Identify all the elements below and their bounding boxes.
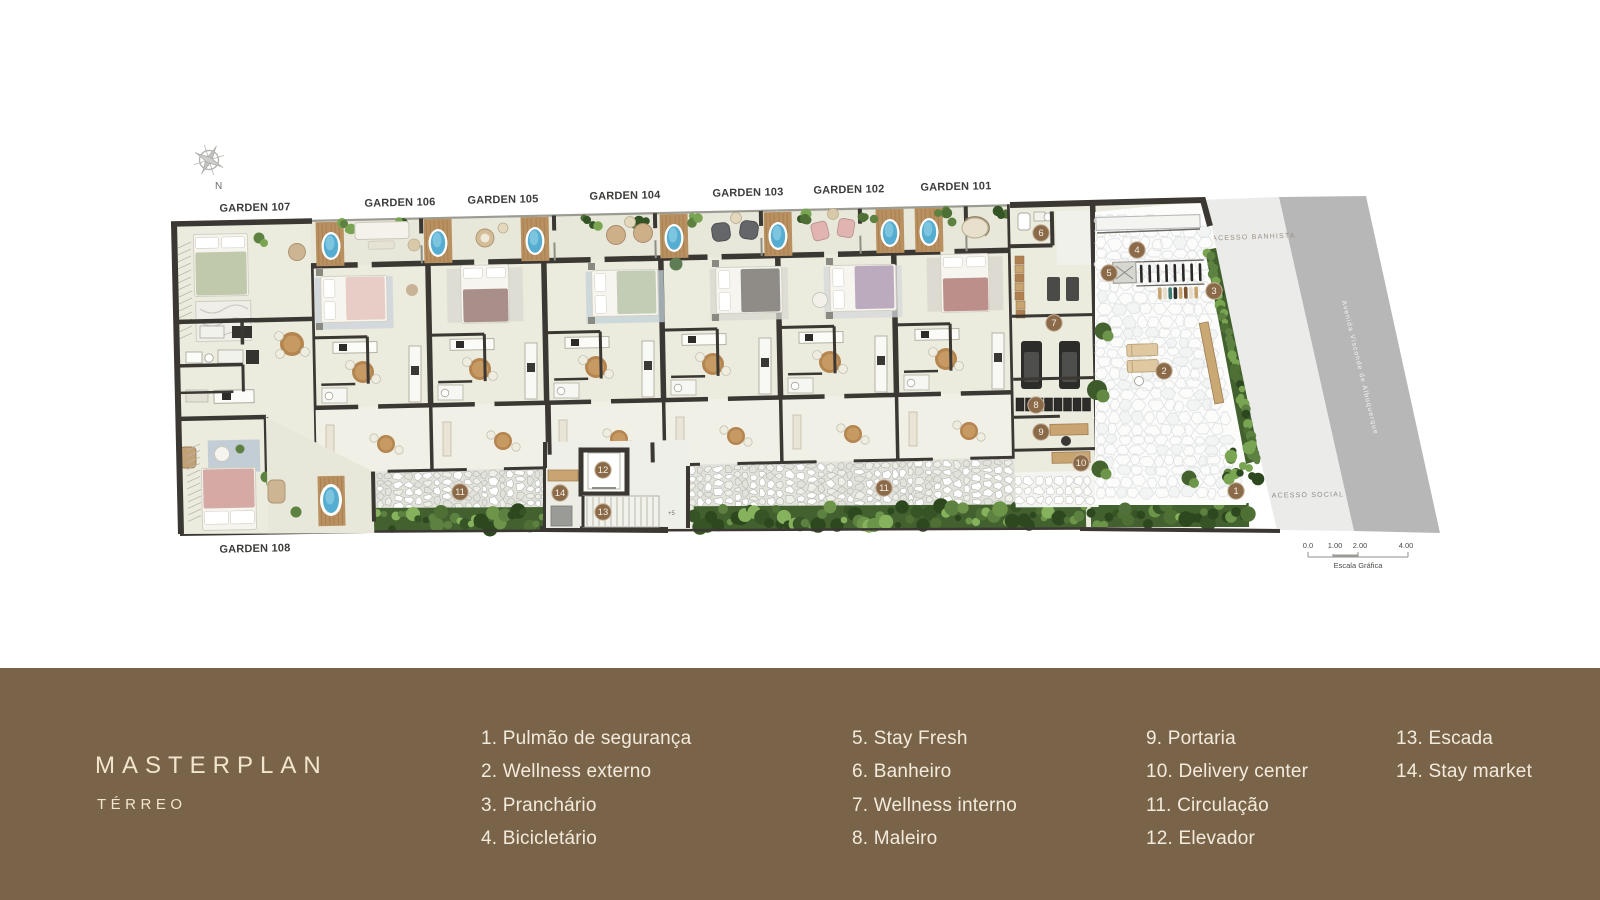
svg-text:6: 6 — [1038, 228, 1043, 239]
svg-text:7: 7 — [1051, 318, 1056, 329]
svg-text:1.00: 1.00 — [1328, 541, 1343, 550]
svg-text:11: 11 — [879, 483, 889, 494]
svg-text:GARDEN 106: GARDEN 106 — [364, 196, 435, 210]
svg-text:14: 14 — [555, 488, 566, 499]
svg-text:2: 2 — [1161, 366, 1166, 377]
svg-text:3: 3 — [1211, 286, 1216, 297]
svg-text:GARDEN 103: GARDEN 103 — [712, 186, 783, 200]
svg-text:5: 5 — [1106, 268, 1111, 279]
svg-text:GARDEN 104: GARDEN 104 — [589, 189, 661, 203]
svg-text:GARDEN 105: GARDEN 105 — [467, 193, 538, 207]
svg-text:11: 11 — [455, 487, 465, 498]
svg-text:13: 13 — [598, 507, 609, 518]
svg-text:4: 4 — [1134, 245, 1139, 256]
svg-text:4.00: 4.00 — [1399, 541, 1414, 550]
svg-text:GARDEN 107: GARDEN 107 — [219, 201, 290, 215]
svg-text:10: 10 — [1076, 458, 1087, 469]
svg-text:2.00: 2.00 — [1353, 541, 1368, 550]
svg-text:ACESSO SOCIAL: ACESSO SOCIAL — [1272, 491, 1345, 499]
svg-text:8: 8 — [1033, 400, 1038, 411]
svg-text:GARDEN 102: GARDEN 102 — [813, 183, 884, 197]
svg-text:GARDEN 108: GARDEN 108 — [219, 542, 290, 556]
svg-text:1: 1 — [1233, 486, 1238, 497]
svg-text:GARDEN 101: GARDEN 101 — [920, 180, 991, 194]
svg-text:+5: +5 — [668, 511, 676, 517]
svg-text:Escala Gráfica: Escala Gráfica — [1334, 561, 1384, 570]
svg-text:N: N — [215, 181, 222, 192]
svg-text:0.0: 0.0 — [1303, 541, 1313, 550]
svg-text:12: 12 — [598, 465, 609, 476]
svg-text:9: 9 — [1038, 427, 1043, 438]
